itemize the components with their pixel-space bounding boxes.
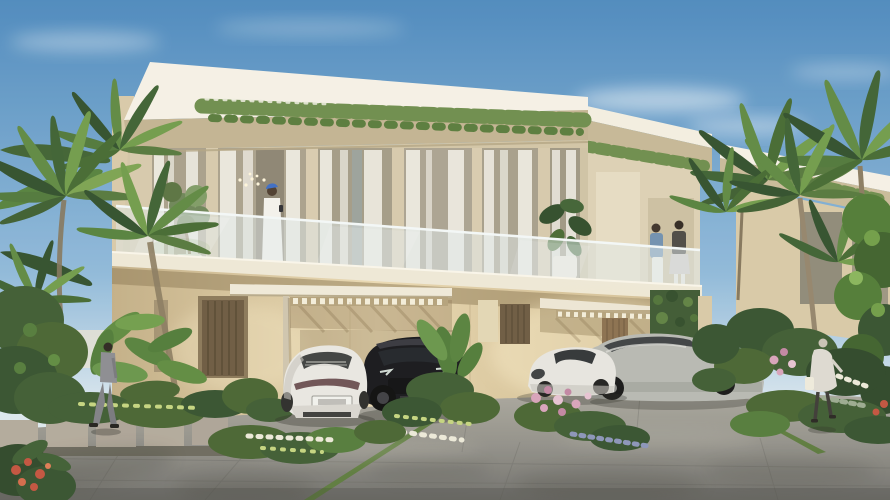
color-grade-overlay [0,0,890,500]
architectural-render [0,0,890,500]
render-canvas [0,0,890,500]
